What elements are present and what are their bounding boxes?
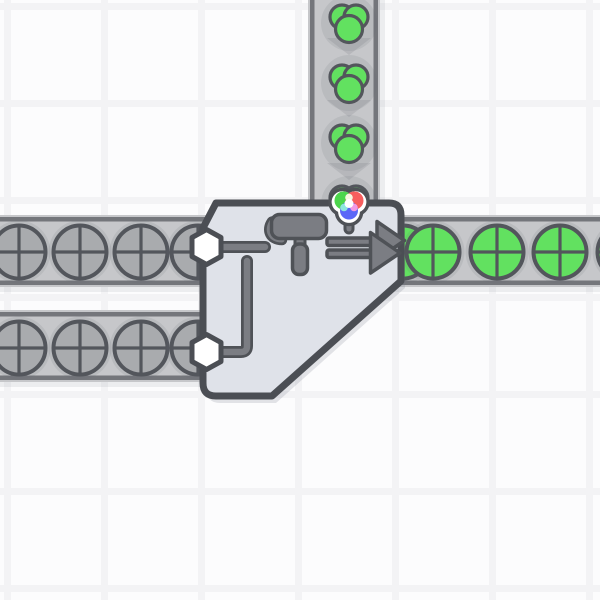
input-hexagon-bottom <box>192 335 221 370</box>
item-circle-green <box>529 221 592 284</box>
wheel-center <box>345 199 354 208</box>
item-circle-uncolored <box>49 317 112 380</box>
item-circle-uncolored <box>110 317 173 380</box>
item-circle-green <box>402 221 465 284</box>
item-circle-green <box>466 221 529 284</box>
input-hexagon-top <box>192 230 221 265</box>
item-circle-uncolored <box>110 221 173 284</box>
double-painter-machine[interactable] <box>192 190 405 404</box>
item-color-green <box>321 55 377 111</box>
game-canvas[interactable] <box>0 0 600 600</box>
item-circle-uncolored <box>49 221 112 284</box>
item-color-green <box>321 115 377 171</box>
game-viewport[interactable] <box>0 0 600 600</box>
